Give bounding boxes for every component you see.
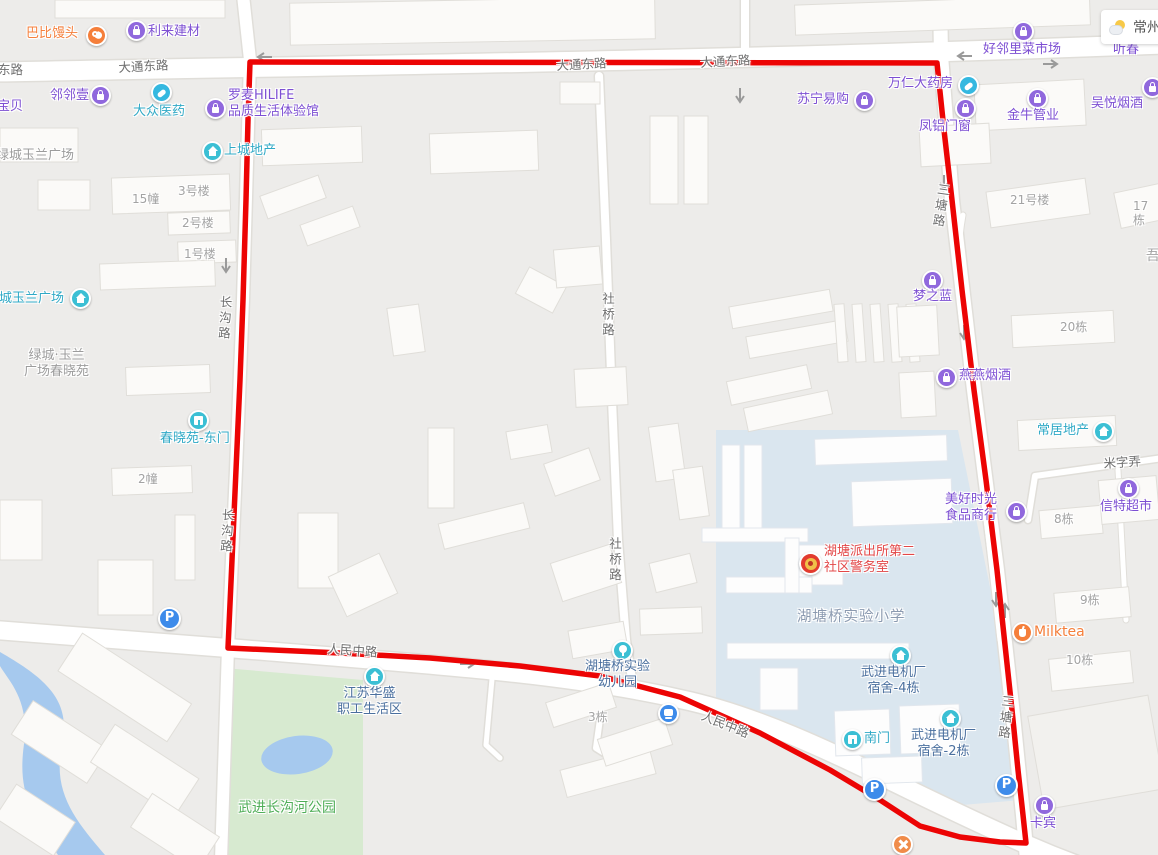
parking-icon[interactable]: [158, 607, 181, 630]
road-label-datong: 大通东路: [700, 52, 751, 70]
poi-label-lvcheng-plaza[interactable]: 绿城玉兰广场: [0, 291, 64, 307]
poi-label-baobei[interactable]: 宝贝: [0, 99, 23, 115]
poi-label-shangcheng[interactable]: 上城地产: [224, 143, 276, 159]
area-label-park: 武进长沟河公园: [238, 800, 336, 817]
poi-label-nanmen[interactable]: 南门: [864, 731, 890, 747]
house-icon[interactable]: [1093, 421, 1114, 442]
poi-label-chunxiao-gate[interactable]: 春晓苑-东门: [160, 431, 230, 447]
poi-label-wuyue[interactable]: 吴悦烟酒: [1091, 96, 1143, 112]
road-label-datong: 大通东路: [118, 57, 169, 75]
building-label: 吾: [1146, 248, 1158, 265]
police-badge-icon[interactable]: [799, 552, 822, 575]
poi-label-lilai[interactable]: 利来建材: [148, 24, 200, 40]
bag-icon[interactable]: [126, 20, 147, 41]
road-label-mizi: 米字弄: [1103, 453, 1141, 471]
bag-icon[interactable]: [1034, 795, 1055, 816]
poi-label-kindergarten[interactable]: 湖塘桥实验 幼儿园: [585, 659, 650, 690]
bag-icon[interactable]: [854, 90, 875, 111]
poi-label-kabin[interactable]: 卡宾: [1030, 816, 1056, 832]
building-label: 10栋: [1066, 653, 1093, 667]
building-label: 15幢: [132, 192, 159, 206]
poi-label-jinniu[interactable]: 金牛管业: [1007, 108, 1059, 124]
bag-icon[interactable]: [1006, 501, 1027, 522]
building-label: 21号楼: [1010, 193, 1049, 207]
house-icon[interactable]: [890, 645, 911, 666]
bag-icon[interactable]: [1013, 21, 1034, 42]
poi-label-jiangsu[interactable]: 江苏华盛 职工生活区: [337, 686, 402, 717]
poi-label-haolinli[interactable]: 好邻里菜市场: [983, 42, 1061, 58]
house-icon[interactable]: [364, 666, 385, 687]
bag-icon[interactable]: [936, 367, 957, 388]
map-canvas[interactable]: [0, 0, 1158, 855]
gate-icon[interactable]: [842, 729, 863, 750]
road-label-changgou: 长沟路: [216, 295, 233, 342]
bag-icon[interactable]: [1142, 77, 1158, 98]
pill-icon[interactable]: [151, 82, 172, 103]
building-label: 3号楼: [178, 184, 210, 198]
bus-stop-icon[interactable]: [658, 703, 679, 724]
pill-icon[interactable]: [958, 75, 979, 96]
poi-label-tingchun[interactable]: 听春: [1113, 42, 1139, 58]
poi-label-dorm2[interactable]: 武进电机厂 宿舍-2栋: [911, 728, 976, 759]
building-label: 20栋: [1060, 320, 1087, 334]
house-icon[interactable]: [940, 708, 961, 729]
poi-label-suning[interactable]: 苏宁易购: [797, 92, 849, 108]
poi-label-luomai[interactable]: 罗麦HILIFE 品质生活体验馆: [228, 88, 319, 119]
building-label: 9栋: [1080, 593, 1100, 607]
building-label: 17栋: [1133, 199, 1158, 228]
building-label: 3栋: [588, 710, 608, 724]
bag-icon[interactable]: [1118, 478, 1139, 499]
kindergarten-icon[interactable]: [612, 640, 633, 661]
poi-label-fenglv[interactable]: 凤铝门窗: [919, 119, 971, 135]
area-label-lvcheng: 绿城玉兰广场: [0, 148, 74, 164]
building-label: 1号楼: [184, 247, 216, 261]
area-label-lvcheng-chunxiao: 绿城·玉兰 广场春晓苑: [24, 348, 89, 379]
road-label-sheqiao: 社桥路: [607, 537, 622, 584]
road-label-sheqiao: 社桥路: [600, 292, 615, 339]
parking-icon[interactable]: [995, 774, 1018, 797]
poi-label-police[interactable]: 湖塘派出所第二 社区警务室: [824, 544, 915, 575]
poi-label-changju[interactable]: 常居地产: [1037, 423, 1089, 439]
gate-icon[interactable]: [188, 410, 209, 431]
poi-label-wanren[interactable]: 万仁大药房: [888, 76, 953, 92]
weather-city: 常州: [1133, 17, 1158, 37]
weather-widget[interactable]: 常州: [1101, 10, 1158, 44]
house-icon[interactable]: [202, 141, 223, 162]
milktea-cup-icon[interactable]: [1012, 622, 1033, 643]
bun-shop-icon[interactable]: [86, 25, 107, 46]
road-label-datong: 大通东路: [556, 55, 607, 73]
parking-icon[interactable]: [863, 778, 886, 801]
poi-label-milktea[interactable]: Milktea: [1034, 624, 1085, 641]
poi-label-meihao[interactable]: 美好时光 食品商行: [945, 492, 997, 523]
bag-icon[interactable]: [1027, 88, 1048, 109]
poi-label-dazhong[interactable]: 大众医药: [133, 104, 185, 120]
road-label-changgou: 长沟路: [218, 508, 235, 555]
house-icon[interactable]: [70, 288, 91, 309]
poi-label-linlinyi[interactable]: 邻邻壹: [50, 88, 89, 104]
poi-label-xinte[interactable]: 信特超市: [1100, 499, 1152, 515]
bag-icon[interactable]: [955, 98, 976, 119]
poi-label-yanyan[interactable]: 燕燕烟酒: [959, 368, 1011, 384]
dining-icon[interactable]: [892, 834, 913, 855]
building-label: 2号楼: [182, 216, 214, 230]
building-label: 8栋: [1054, 512, 1074, 526]
partly-cloudy-icon: [1109, 20, 1127, 34]
poi-label-dorm4[interactable]: 武进电机厂 宿舍-4栋: [861, 665, 926, 696]
map-viewport[interactable]: 东路 大通东路 大通东路 大通东路 社桥路 社桥路 长沟路 长沟路 三塘路 三塘…: [0, 0, 1158, 855]
bag-icon[interactable]: [90, 85, 111, 106]
area-label-school: 湖塘桥实验小学: [797, 609, 906, 626]
poi-label-babi[interactable]: 巴比馒头: [26, 26, 78, 42]
poi-label-mengzhilan[interactable]: 梦之蓝: [913, 289, 952, 305]
bag-icon[interactable]: [922, 270, 943, 291]
building-label: 2幢: [138, 472, 158, 486]
bag-icon[interactable]: [205, 98, 226, 119]
road-label-datong-partial: 东路: [0, 62, 23, 77]
